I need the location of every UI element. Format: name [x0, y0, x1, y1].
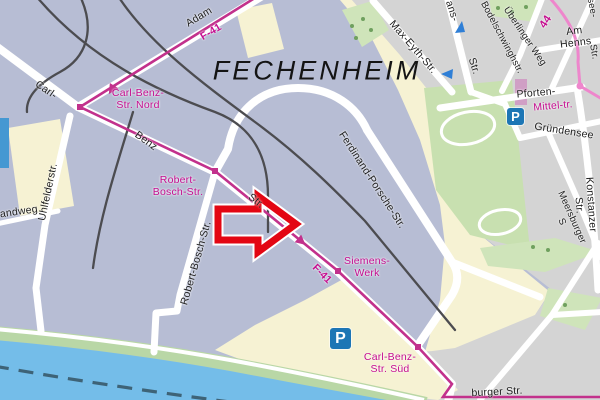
street-robert-bosch — [154, 172, 215, 352]
route-node — [415, 344, 421, 350]
route-44-node — [577, 83, 584, 90]
route-node — [335, 268, 341, 274]
poi-label-carl-benz-sued: Carl-Benz- Str. Süd — [364, 351, 416, 375]
water-basin — [0, 118, 9, 168]
parking-icon: P — [507, 108, 524, 125]
parking-icon: P — [330, 328, 351, 349]
street-label-see-str: Str. — [586, 44, 599, 61]
street-carl — [0, 46, 78, 107]
map-canvas[interactable]: FECHENHEIM Adam F-41 Carl- Benz Str. Car… — [0, 0, 600, 400]
street-southeast-2 — [552, 312, 600, 315]
street-label-see: see- — [584, 0, 598, 18]
poi-label-carl-benz-nord: Carl-Benz- Str. Nord — [112, 87, 164, 111]
route-node — [77, 104, 83, 110]
district-title: FECHENHEIM — [213, 55, 422, 86]
route-node — [212, 168, 218, 174]
poi-label-robert-bosch: Robert- Bosch-Str. — [153, 174, 203, 198]
poi-label-siemens-werk: Siemens- Werk — [344, 255, 390, 279]
